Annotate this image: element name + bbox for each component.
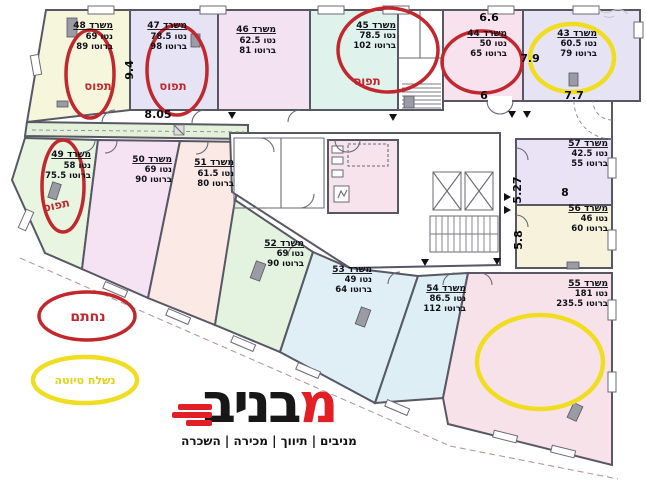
svg-text:6: 6 (480, 89, 488, 102)
svg-text:משרד 43: משרד 43 (557, 29, 597, 39)
tagline-rest: | תיווך | מכירה | השכרה (181, 434, 316, 448)
tagline-bold-word: מניבים (320, 434, 357, 448)
room-54-label: משרד 54נטו 86.5ברוטו 112 (423, 284, 466, 314)
svg-text:8.05: 8.05 (144, 108, 171, 121)
svg-text:משרד 53: משרד 53 (332, 265, 372, 275)
terrace (574, 101, 612, 139)
svg-text:נטו 69: נטו 69 (145, 165, 172, 175)
room-57-label: משרד 57נטו 42.5ברוטו 55 (568, 139, 608, 169)
svg-text:7.7: 7.7 (564, 89, 584, 102)
logo-first-letter: מ (299, 371, 336, 435)
svg-text:נטו 69: נטו 69 (277, 249, 304, 259)
fixture (332, 170, 343, 177)
occupied-room48: תפוס (84, 79, 111, 93)
svg-text:ברוטו 90: ברוטו 90 (135, 175, 172, 185)
svg-text:ברוטו 60: ברוטו 60 (571, 224, 608, 234)
signed-text: נחתם (70, 309, 105, 325)
fixture (332, 157, 343, 164)
svg-text:ברוטו 102: ברוטו 102 (353, 41, 396, 51)
svg-text:6.6: 6.6 (479, 11, 499, 24)
svg-text:נטו 62.5: נטו 62.5 (240, 36, 277, 46)
svg-text:משרד 55: משרד 55 (568, 279, 608, 289)
svg-text:8: 8 (561, 186, 569, 199)
logo-wordmark: מבניב (168, 372, 370, 434)
svg-text:ברוטו 64: ברוטו 64 (335, 285, 372, 295)
svg-text:משרד 44: משרד 44 (467, 29, 507, 39)
svg-text:ברוטו 80: ברוטו 80 (197, 179, 234, 189)
svg-text:נטו 42.5: נטו 42.5 (572, 149, 609, 159)
svg-text:7.9: 7.9 (520, 52, 540, 65)
svg-text:ברוטו 89: ברוטו 89 (76, 42, 113, 52)
svg-text:משרד 48: משרד 48 (73, 21, 113, 31)
svg-text:5.8: 5.8 (512, 230, 525, 250)
svg-text:ברוטו 90: ברוטו 90 (267, 259, 304, 269)
occupied-room45: תפוס (353, 74, 380, 88)
corridor-area (25, 122, 248, 139)
svg-text:משרד 46: משרד 46 (236, 25, 276, 35)
svg-text:משרד 54: משרד 54 (426, 284, 466, 294)
svg-text:נטו 181: נטו 181 (575, 289, 608, 299)
svg-text:ברוטו 98: ברוטו 98 (150, 42, 187, 52)
ac-unit (404, 96, 414, 108)
svg-text:נטו 86.5: נטו 86.5 (430, 294, 467, 304)
svg-text:נטו 69: נטו 69 (86, 32, 113, 42)
svg-text:נטו 58: נטו 58 (64, 161, 91, 171)
svg-text:משרד 49: משרד 49 (51, 150, 91, 160)
room-47-label: משרד 47נטו 78.5ברוטו 98 (147, 21, 187, 52)
svg-text:משרד 51: משרד 51 (194, 158, 234, 168)
shaft-box (334, 186, 349, 202)
svg-text:נטו 60.5: נטו 60.5 (561, 39, 598, 49)
svg-text:נטו 49: נטו 49 (345, 275, 372, 285)
svg-text:ברוטו 235.5: ברוטו 235.5 (556, 299, 608, 309)
svg-text:נטו 61.5: נטו 61.5 (198, 169, 235, 179)
mivnim-logo: מבניב מניבים | תיווך | מכירה | השכרה (168, 372, 370, 448)
svg-text:משרד 50: משרד 50 (132, 155, 172, 165)
svg-text:משרד 57: משרד 57 (568, 139, 608, 149)
occupied-room47: תפוס (159, 79, 186, 93)
room-45-label: משרד 45נטו 78.5ברוטו 102 (353, 21, 396, 51)
logo-tagline: מניבים | תיווך | מכירה | השכרה (168, 434, 370, 448)
room-51-label: משרד 51נטו 61.5ברוטו 80 (194, 158, 234, 189)
floor-plan-page: משרד 48נטו 69ברוטו 89 משרד 47נטו 78.5ברו… (0, 0, 646, 480)
svg-text:משרד 52: משרד 52 (264, 239, 304, 249)
draft-sent-text: נשלח טיוטה (55, 374, 116, 387)
svg-text:ברוטו 55: ברוטו 55 (571, 159, 608, 169)
svg-text:ברוטו 79: ברוטו 79 (560, 49, 597, 59)
svg-text:נטו 46: נטו 46 (581, 214, 608, 224)
svg-text:משרד 45: משרד 45 (356, 21, 396, 31)
svg-text:משרד 47: משרד 47 (147, 21, 187, 31)
svg-text:ברוטו 65: ברוטו 65 (470, 49, 507, 59)
room-43-label: משרד 43נטו 60.5ברוטו 79 (557, 29, 597, 59)
logo-rest-letters: בניב (202, 371, 298, 435)
svg-text:ברוטו 81: ברוטו 81 (239, 46, 276, 56)
room-46-label: משרד 46נטו 62.5ברוטו 81 (236, 25, 276, 56)
svg-text:ברוטו 112: ברוטו 112 (423, 304, 466, 314)
svg-text:משרד 56: משרד 56 (568, 204, 608, 214)
svg-text:נטו 50: נטו 50 (480, 39, 507, 49)
svg-text:ברוטו 75.5: ברוטו 75.5 (45, 171, 91, 181)
svg-text:9.4: 9.4 (123, 60, 136, 80)
svg-text:5.27: 5.27 (511, 176, 524, 203)
svg-text:נטו 78.5: נטו 78.5 (151, 32, 188, 42)
svg-text:נטו 78.5: נטו 78.5 (360, 31, 397, 41)
